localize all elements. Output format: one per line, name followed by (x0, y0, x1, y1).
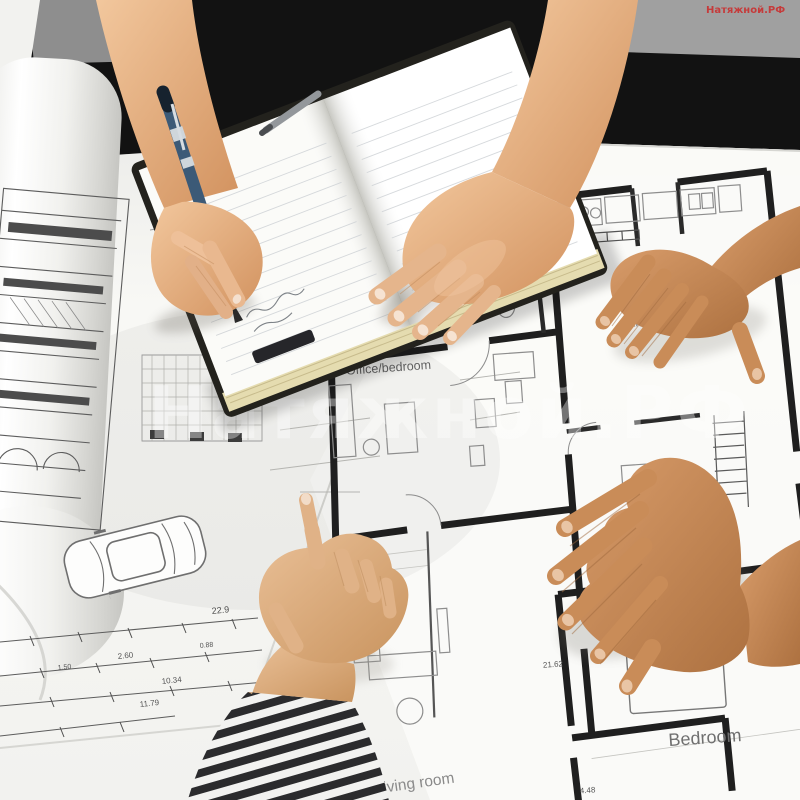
dim-22-9: 22.9 (211, 604, 229, 616)
dim-2-60: 2.60 (117, 650, 134, 661)
thumb-nail (752, 368, 762, 380)
folded-pinky (386, 584, 390, 612)
photo-architects-blueprints: 22.9 2.60 0.88 1.50 10.34 11.79 Office/b… (0, 0, 800, 800)
folded-middle (342, 556, 352, 586)
thumb-nail (622, 680, 633, 693)
dim-1-50: 1.50 (57, 664, 71, 672)
photo-canvas: 22.9 2.60 0.88 1.50 10.34 11.79 Office/b… (0, 0, 800, 800)
corner-watermark-text: Натяжной.РФ (706, 5, 785, 16)
dim-0-88: 0.88 (199, 642, 213, 650)
folded-ring (366, 566, 374, 596)
dim-4-48: 4.48 (580, 785, 597, 795)
pen-cap (163, 92, 168, 106)
pen-band-2 (186, 158, 189, 167)
dim-21-62: 21.62 (543, 659, 564, 669)
